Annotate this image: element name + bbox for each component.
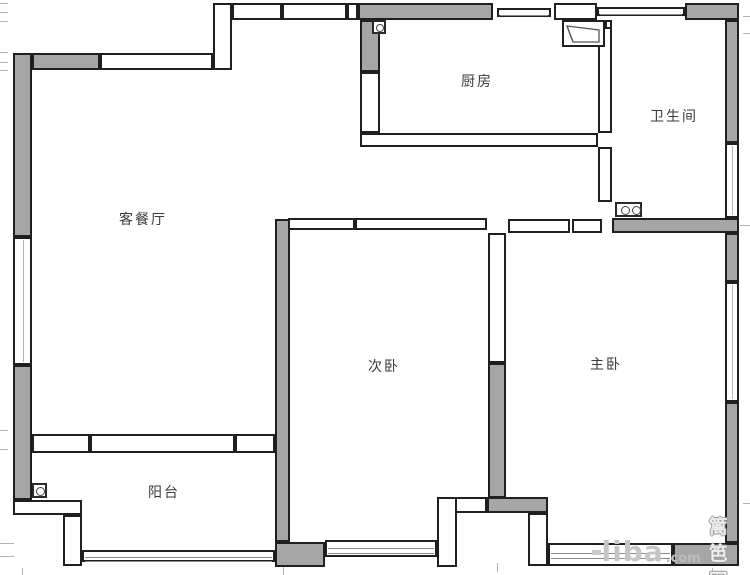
room-label-master-bedroom: 主卧 [590, 354, 622, 374]
wall-segment [360, 72, 380, 133]
window-segment [82, 550, 275, 562]
icon-circle [376, 24, 384, 32]
dimension-tick [0, 62, 8, 63]
dimension-tick [0, 556, 14, 557]
wall-segment [488, 233, 506, 363]
wall-segment [347, 3, 358, 20]
wall-segment [598, 147, 612, 202]
dimension-tick [497, 563, 498, 572]
dimension-tick [0, 543, 14, 544]
wall-segment [725, 20, 739, 143]
window-glass-line [732, 285, 733, 399]
dimension-tick [0, 70, 8, 71]
basin-circle [621, 206, 630, 215]
wall-segment [554, 3, 597, 20]
window-segment [725, 282, 739, 402]
window-glass-line [328, 548, 434, 549]
window-segment [325, 540, 437, 557]
window-glass-line [85, 561, 272, 562]
room-label-bathroom: 卫生间 [650, 106, 698, 126]
window-glass-line [23, 240, 24, 362]
wall-segment [572, 219, 602, 233]
window-glass-line [500, 15, 548, 16]
wall-segment [232, 3, 282, 20]
wall-segment [673, 543, 739, 566]
dimension-tick [743, 16, 750, 17]
window-glass-line [551, 553, 670, 554]
wall-segment [528, 513, 548, 566]
dimension-tick [0, 430, 8, 431]
wall-segment [612, 218, 739, 233]
wall-segment [437, 497, 457, 567]
wall-segment [13, 365, 32, 500]
wall-segment [355, 218, 487, 230]
window-glass-line [600, 14, 682, 15]
wall-segment [32, 53, 100, 70]
window-glass-line [85, 557, 272, 558]
wall-segment [213, 3, 232, 70]
wall-segment [360, 133, 598, 147]
wall-segment [725, 233, 739, 282]
wall-segment [275, 542, 325, 567]
wall-segment [100, 53, 213, 70]
dimension-tick [0, 3, 8, 4]
basin-circle [632, 206, 641, 215]
room-label-kitchen: 厨房 [461, 71, 493, 91]
icon-circle [36, 487, 45, 496]
window-segment [497, 8, 551, 17]
dimension-tick [740, 225, 750, 226]
wall-segment [358, 3, 493, 20]
wall-segment [685, 3, 739, 20]
window-segment [548, 543, 673, 566]
wall-segment [13, 53, 32, 237]
wall-segment [235, 434, 275, 453]
window-segment [597, 7, 685, 16]
wall-segment [32, 434, 90, 453]
wall-segment [63, 515, 82, 566]
wall-segment [605, 20, 612, 29]
room-label-second-bedroom: 次卧 [368, 356, 400, 376]
wall-segment [508, 219, 570, 233]
window-glass-line [732, 146, 733, 215]
room-label-balcony: 阳台 [148, 482, 180, 502]
wall-segment [487, 497, 548, 513]
wall-segment [288, 218, 355, 230]
flue-icon [372, 20, 386, 34]
wall-segment [275, 219, 290, 542]
dimension-tick [743, 503, 750, 504]
window-glass-line [551, 558, 670, 559]
dimension-tick [0, 12, 8, 13]
wall-segment [725, 402, 739, 543]
double-basin-icon [615, 202, 642, 217]
wall-segment [13, 500, 82, 515]
range-hood-icon [562, 20, 605, 47]
wall-segment [282, 3, 347, 20]
dimension-tick [283, 567, 284, 575]
dimension-tick [712, 568, 713, 575]
window-segment [13, 237, 32, 365]
floorplan-canvas: 客餐厅厨房卫生间次卧主卧阳台 liba .com 篱笆网 [0, 0, 750, 575]
floor-drain-icon [32, 483, 47, 498]
room-label-living-dining: 客餐厅 [119, 209, 167, 229]
dimension-tick [0, 449, 8, 450]
window-segment [725, 143, 739, 218]
dimension-tick [0, 52, 8, 53]
range-hood-icon-wrap [562, 20, 605, 47]
wall-segment [90, 434, 235, 453]
dimension-tick [0, 21, 8, 22]
window-glass-line [328, 553, 434, 554]
dimension-tick [743, 33, 750, 34]
dimension-tick [22, 568, 23, 575]
wall-segment [488, 363, 506, 498]
